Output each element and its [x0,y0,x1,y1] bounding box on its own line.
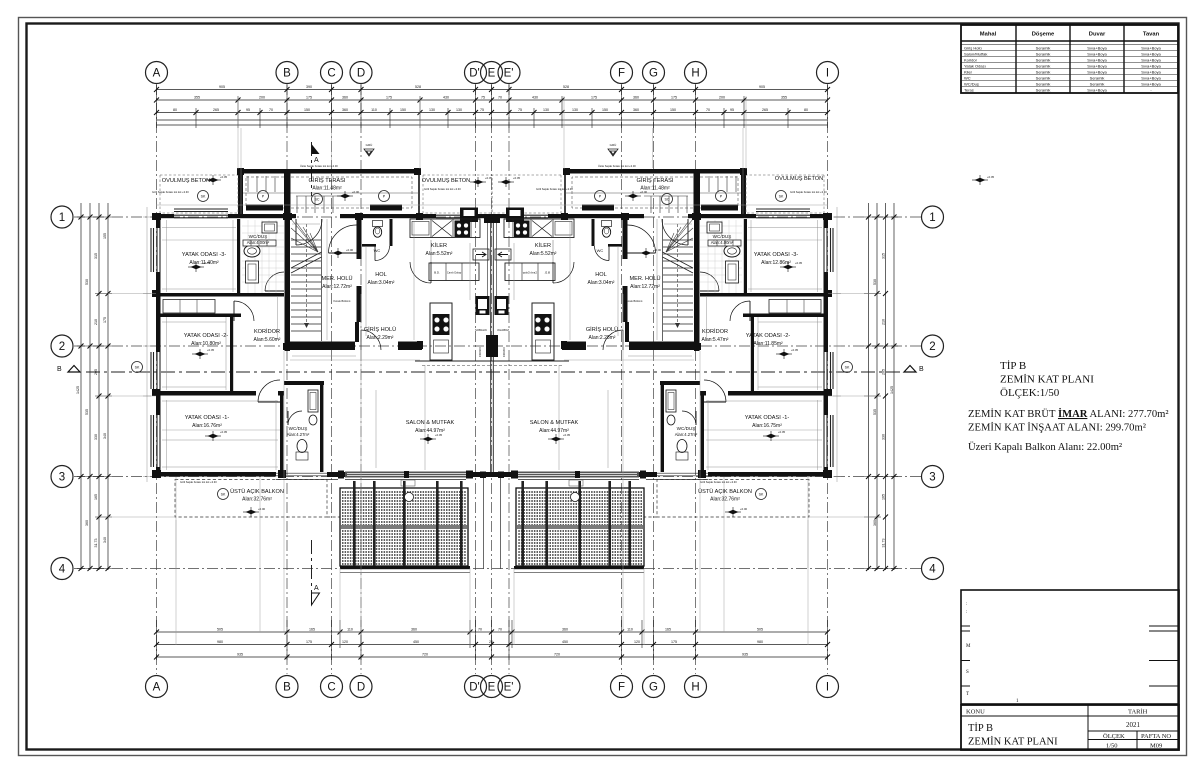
svg-text:130: 130 [429,108,435,112]
svg-text:C: C [327,682,335,694]
svg-text:130: 130 [456,108,462,112]
svg-text:KİLER: KİLER [535,242,551,249]
svg-text:OVULMUŞ BETON: OVULMUŞ BETON [775,176,823,182]
svg-text:Yemek Bölümü: Yemek Bölümü [625,299,643,303]
svg-text:150: 150 [304,108,310,112]
svg-text:C: C [327,68,335,80]
svg-text:530: 530 [873,279,877,285]
svg-text:Alan:2.29m²: Alan:2.29m² [367,335,394,341]
svg-text:GRÜ: GRÜ [366,143,373,147]
svg-text:Alan:3.04m²: Alan:3.04m² [588,280,615,286]
svg-text:75: 75 [480,108,484,112]
svg-text:Gizli Saçak Kotası üst kot +3.: Gizli Saçak Kotası üst kot +3.30 [536,187,573,191]
svg-text:720: 720 [422,653,428,657]
svg-text:Sıva+Boya: Sıva+Boya [1087,51,1107,56]
svg-text:Alan:4.27m²: Alan:4.27m² [287,432,310,437]
svg-text:ZEMİN KAT PLANI: ZEMİN KAT PLANI [1000,374,1094,386]
svg-text:TİP B: TİP B [968,722,993,734]
svg-text:D: D [357,682,365,694]
svg-text:265: 265 [762,108,768,112]
svg-text:80: 80 [173,108,177,112]
svg-text:A: A [314,157,319,164]
svg-text:120: 120 [342,640,348,644]
svg-text:Gizli Saçak Kotası üst kot +3.: Gizli Saçak Kotası üst kot +3.30 [790,190,827,194]
svg-text:95: 95 [730,108,734,112]
svg-text:175: 175 [306,96,312,100]
svg-text:Sıva+Boya: Sıva+Boya [1087,87,1107,92]
svg-text:E': E' [504,68,514,80]
svg-text:360: 360 [342,96,348,100]
svg-text:Seramik: Seramik [1090,75,1105,80]
svg-text:YATAK ODASI -2-: YATAK ODASI -2- [746,333,791,339]
svg-text:70: 70 [498,628,502,632]
svg-text:+0.00: +0.00 [740,507,748,511]
svg-text:WC: WC [964,75,971,80]
svg-text:2: 2 [59,341,65,353]
svg-text:ZEMİN KAT PLANI: ZEMİN KAT PLANI [968,736,1058,748]
svg-text:SK: SK [201,194,206,198]
svg-text:4: 4 [59,564,66,576]
svg-text:935: 935 [237,653,243,657]
svg-text:360: 360 [633,108,639,112]
svg-text:360: 360 [342,108,348,112]
svg-text:MER. HOLÜ: MER. HOLÜ [629,275,660,282]
svg-text:YATAK ODASI -3-: YATAK ODASI -3- [182,252,227,258]
svg-text:430: 430 [532,96,538,100]
svg-text:HOL: HOL [375,272,387,278]
svg-text:A: A [314,585,319,592]
svg-text::: : [966,602,967,607]
svg-text:Tavan: Tavan [1143,32,1160,38]
svg-text:HOL: HOL [595,272,607,278]
svg-text:B: B [283,68,291,80]
svg-text:80: 80 [804,108,808,112]
svg-text:110: 110 [371,108,377,112]
svg-text:A: A [153,68,161,80]
svg-text:SK: SK [759,492,764,496]
svg-text:1425: 1425 [76,386,80,394]
svg-text:Alan:4.00m²: Alan:4.00m² [247,240,270,245]
svg-text:M09: M09 [1150,743,1162,750]
svg-text:+0.05: +0.05 [485,176,493,180]
svg-text:Seramik: Seramik [1036,81,1051,86]
svg-text:Alan:4.27m²: Alan:4.27m² [675,432,698,437]
svg-text:Alan:11.48m²: Alan:11.48m² [312,186,342,192]
svg-text:75: 75 [481,96,485,100]
svg-text:315: 315 [882,253,886,259]
svg-text:315: 315 [94,253,98,259]
svg-text:Alan:12.72m²: Alan:12.72m² [630,284,660,290]
svg-text:Alan:16.75m²: Alan:16.75m² [752,423,782,429]
svg-text:150: 150 [670,108,676,112]
svg-text:210: 210 [882,319,886,325]
svg-text:KORİDOR: KORİDOR [702,328,728,335]
svg-text:905: 905 [759,85,765,89]
svg-text:Seramik: Seramik [1036,63,1051,68]
svg-text:Alan:16.76m²: Alan:16.76m² [192,423,222,429]
svg-text:Gizli Saçak Kotası üst kot +3.: Gizli Saçak Kotası üst kot +3.30 [180,480,217,484]
svg-text:B: B [57,366,62,373]
svg-text:Sıva+Boya: Sıva+Boya [1141,51,1161,56]
svg-text:G: G [649,682,658,694]
svg-text:ÖLÇEK: ÖLÇEK [1103,733,1125,740]
svg-text:26: 26 [489,640,493,644]
svg-text:A: A [153,682,161,694]
svg-text:Alan:11.85m²: Alan:11.85m² [753,341,783,347]
svg-text:2021: 2021 [1126,721,1141,729]
svg-text:Alan:32.76m²: Alan:32.76m² [710,497,740,503]
svg-text:Alan:11.40m²: Alan:11.40m² [189,260,219,266]
svg-text:528: 528 [563,85,569,89]
svg-text:ZEMİN KAT BRÜT İMAR ALANI: 277: ZEMİN KAT BRÜT İMAR ALANI: 277.70m² [968,408,1169,420]
svg-text:E: E [488,682,496,694]
svg-text:360: 360 [873,520,877,526]
svg-text:Teras: Teras [964,87,974,92]
svg-text:SALON & MUTFAK: SALON & MUTFAK [406,420,455,426]
svg-text:1: 1 [59,212,65,224]
svg-text:B: B [919,366,924,373]
svg-text:Seramik: Seramik [1036,69,1051,74]
svg-text:450: 450 [562,640,568,644]
svg-text:ÜSTÜ AÇIK BALKON: ÜSTÜ AÇIK BALKON [230,488,284,495]
svg-text:150: 150 [400,108,406,112]
svg-text:+0.00: +0.00 [654,248,662,252]
svg-text:SK: SK [779,194,784,198]
svg-text:450: 450 [413,640,419,644]
svg-text:110: 110 [347,628,353,632]
svg-text:355: 355 [194,96,200,100]
svg-text:Giriş Holü: Giriş Holü [964,45,982,50]
svg-text:SK: SK [135,365,140,369]
svg-text:Seramik: Seramik [1090,81,1105,86]
svg-text:WC: WC [374,248,381,253]
svg-text:D': D' [469,682,480,694]
svg-text:+0.05: +0.05 [795,261,803,265]
svg-text:KORİDOR: KORİDOR [254,328,280,335]
svg-text:4: 4 [929,564,936,576]
svg-text:130: 130 [543,108,549,112]
svg-text:Sıva+Boya: Sıva+Boya [1087,45,1107,50]
svg-text:Sıva+Boya: Sıva+Boya [1087,63,1107,68]
svg-text:I: I [826,682,829,694]
svg-text:75: 75 [518,108,522,112]
svg-text:+0.05: +0.05 [513,176,521,180]
svg-text:3: 3 [929,472,935,484]
svg-text:205: 205 [94,369,98,375]
svg-text:KONU: KONU [966,709,985,716]
svg-text:SC: SC [315,197,320,201]
svg-text:Alan:10.80m²: Alan:10.80m² [191,341,221,347]
svg-text:1/50: 1/50 [1106,743,1118,750]
svg-text:980: 980 [757,640,763,644]
svg-text:Üzeri Kapalı Balkon Alanı:: Üzeri Kapalı Balkon Alanı: 22.00m² [968,441,1122,453]
svg-text:165: 165 [882,494,886,500]
svg-text:175: 175 [306,640,312,644]
svg-text:WC/DUŞ: WC/DUŞ [249,234,268,239]
svg-text:Gizli Saçak Kotası üst kot +3.: Gizli Saçak Kotası üst kot +3.30 [152,190,189,194]
svg-text:175: 175 [671,640,677,644]
svg-text:Alan:12.86m²: Alan:12.86m² [761,260,791,266]
svg-text:OVULMUŞ BETON: OVULMUŞ BETON [162,178,210,184]
svg-text:Alan:5.52m²: Alan:5.52m² [530,251,557,257]
svg-text:70: 70 [478,628,482,632]
svg-text:Salon/Mutfak: Salon/Mutfak [964,51,987,56]
svg-text:ÖLÇEK:1/50: ÖLÇEK:1/50 [1000,387,1060,399]
svg-text:175: 175 [671,96,677,100]
svg-text:Üstte Saçak Kotası üst kot +3.: Üstte Saçak Kotası üst kot +3.30 [598,164,636,168]
svg-text:YATAK ODASI -3-: YATAK ODASI -3- [754,252,799,258]
svg-text:Alan:44.97m²: Alan:44.97m² [415,428,445,434]
svg-text:SK: SK [221,492,226,496]
svg-text:70: 70 [498,96,502,100]
svg-text:31.73: 31.73 [882,539,886,548]
svg-text:Seramik: Seramik [1036,87,1051,92]
svg-text:D': D' [469,68,480,80]
svg-text:KİLER: KİLER [431,242,447,249]
svg-text:Mahal: Mahal [980,32,997,38]
svg-text:505: 505 [757,628,763,632]
svg-text:205: 205 [882,369,886,375]
svg-text:150: 150 [602,108,608,112]
svg-text:OVULMUŞ BETON: OVULMUŞ BETON [422,178,470,184]
svg-text:210: 210 [94,319,98,325]
svg-text:T: T [966,692,969,697]
svg-text:MER. HOLÜ: MER. HOLÜ [321,275,352,282]
svg-text:3: 3 [59,472,65,484]
svg-text:130: 130 [572,108,578,112]
svg-text:+0.05: +0.05 [778,430,786,434]
svg-text:935: 935 [742,653,748,657]
svg-text:GİRİŞ HOLÜ: GİRİŞ HOLÜ [364,326,396,333]
svg-text:D: D [357,68,365,80]
svg-text:Seramik: Seramik [1036,51,1051,56]
svg-text:GİRİŞ TERASI: GİRİŞ TERASI [309,177,346,184]
svg-text:70: 70 [269,108,273,112]
svg-text:360: 360 [411,628,417,632]
svg-text:YATAK ODASI -1-: YATAK ODASI -1- [745,415,790,421]
svg-text:535: 535 [85,409,89,415]
svg-text:720: 720 [554,653,560,657]
svg-text:Yemek Bölümü: Yemek Bölümü [333,299,351,303]
svg-text:WC: WC [597,248,604,253]
svg-text:Döşeme: Döşeme [1032,32,1055,38]
svg-text:360: 360 [633,96,639,100]
svg-text:360: 360 [562,628,568,632]
svg-text:165: 165 [309,628,315,632]
svg-text:Alan:2.28m²: Alan:2.28m² [589,335,616,341]
svg-text:ÜSTÜ AÇIK BALKON: ÜSTÜ AÇIK BALKON [698,488,752,495]
svg-text:WC/DUŞ: WC/DUŞ [713,234,732,239]
svg-text:Sıva+Boya: Sıva+Boya [1141,69,1161,74]
svg-text:+0.05: +0.05 [207,348,215,352]
svg-text:Alan:5.52m²: Alan:5.52m² [426,251,453,257]
svg-text:530: 530 [85,279,89,285]
svg-text:70: 70 [706,108,710,112]
svg-text:1: 1 [929,212,935,224]
svg-text:980: 980 [217,640,223,644]
svg-text:Sıva+Boya: Sıva+Boya [1087,57,1107,62]
svg-text:YATAK ODASI -2-: YATAK ODASI -2- [184,333,229,339]
svg-text:1425: 1425 [890,386,894,394]
svg-text:H: H [691,68,699,80]
svg-text:31.73: 31.73 [94,539,98,548]
svg-text:+0.00: +0.00 [346,248,354,252]
svg-text:95: 95 [246,108,250,112]
svg-text:Sıva+Boya: Sıva+Boya [1141,63,1161,68]
svg-text:Sıva+Boya: Sıva+Boya [1141,45,1161,50]
svg-text:Seramik: Seramik [1036,57,1051,62]
svg-text:TİP B: TİP B [1000,360,1026,372]
svg-text:200: 200 [719,96,725,100]
svg-text:Kiler: Kiler [964,69,973,74]
svg-text:360: 360 [85,520,89,526]
svg-text:GRÜ: GRÜ [610,143,617,147]
svg-text:Seramik: Seramik [1036,45,1051,50]
svg-text:Sıva+Boya: Sıva+Boya [1141,57,1161,62]
svg-text:505: 505 [217,628,223,632]
svg-text:Gizli Saçak Kotası üst kot +3.: Gizli Saçak Kotası üst kot +3.30 [424,187,461,191]
svg-text:SK: SK [845,365,850,369]
svg-text:SC: SC [665,197,670,201]
svg-text:265: 265 [213,108,219,112]
svg-text:Yatak Odası: Yatak Odası [964,63,986,68]
svg-text:Alan:44.97m²: Alan:44.97m² [539,428,569,434]
svg-text:I: I [826,68,829,80]
svg-text:340: 340 [103,433,107,439]
svg-text:175: 175 [386,96,392,100]
svg-text:Sıva+Boya: Sıva+Boya [1141,81,1161,86]
svg-text:155: 155 [103,233,107,239]
svg-text:430: 430 [443,96,449,100]
svg-text:YATAK ODASI -1-: YATAK ODASI -1- [185,415,230,421]
svg-text:+0.05: +0.05 [220,175,228,179]
svg-text:WC/DUŞ: WC/DUŞ [289,426,308,431]
svg-text:175: 175 [591,96,597,100]
svg-text:355: 355 [781,96,787,100]
svg-text:SALON & MUTFAK: SALON & MUTFAK [530,420,579,426]
svg-text::: : [966,610,967,615]
svg-text:Alan:5.60m²: Alan:5.60m² [254,337,281,343]
svg-text:Gizli Saçak Kotası üst kot +3.: Gizli Saçak Kotası üst kot +3.30 [700,480,737,484]
svg-text:Sıva+Boya: Sıva+Boya [1141,75,1161,80]
svg-text:528: 528 [415,85,421,89]
svg-text:+0.05: +0.05 [791,348,799,352]
svg-text:200: 200 [259,96,265,100]
svg-text:WC/DUŞ: WC/DUŞ [677,426,696,431]
svg-text:Alan:11.48m²: Alan:11.48m² [640,186,670,192]
svg-text:Alan:5.47m²: Alan:5.47m² [702,337,729,343]
svg-text:PAFTA NO: PAFTA NO [1141,733,1171,740]
svg-text:Duvar: Duvar [1089,32,1106,38]
svg-text:2: 2 [929,341,935,353]
svg-text:TARİH: TARİH [1128,709,1148,716]
svg-text:535: 535 [873,409,877,415]
svg-text:Sıva+Boya: Sıva+Boya [1087,69,1107,74]
svg-text:G: G [649,68,658,80]
svg-text:Üstte Saçak Kotası üst kot +3.: Üstte Saçak Kotası üst kot +3.30 [300,164,338,168]
svg-text:Seramik: Seramik [1036,75,1051,80]
svg-text:+0.00: +0.00 [352,190,360,194]
svg-text:Alan:4.00m²: Alan:4.00m² [711,240,734,245]
svg-text:GİRİŞ HOLÜ: GİRİŞ HOLÜ [586,326,618,333]
svg-text:B: B [283,682,291,694]
svg-text:Alan:12.72m²: Alan:12.72m² [322,284,352,290]
svg-text:175: 175 [103,317,107,323]
svg-text:330: 330 [94,434,98,440]
svg-text:Koridor: Koridor [964,57,978,62]
svg-text:Alan:3.04m²: Alan:3.04m² [368,280,395,286]
svg-text:+0.05: +0.05 [220,430,228,434]
svg-text:S: S [966,670,969,675]
svg-text:390: 390 [306,85,312,89]
svg-text:165: 165 [665,628,671,632]
svg-text:340: 340 [103,537,107,543]
svg-text:+0.05: +0.05 [987,175,995,179]
svg-text:H: H [691,682,699,694]
svg-text:905: 905 [219,85,225,89]
svg-text:165: 165 [94,494,98,500]
svg-text:120: 120 [634,640,640,644]
svg-text:110: 110 [627,628,633,632]
svg-text:Alan:32.76m²: Alan:32.76m² [242,497,272,503]
svg-text:GİRİŞ TERASI: GİRİŞ TERASI [637,177,674,184]
svg-text:M: M [966,644,971,649]
svg-text:+0.00: +0.00 [258,507,266,511]
svg-text:E: E [488,68,496,80]
svg-text:330: 330 [882,434,886,440]
svg-text:E': E' [504,682,514,694]
svg-text:ZEMİN KAT İNŞAAT ALANI: 299.70: ZEMİN KAT İNŞAAT ALANI: 299.70m² [968,422,1146,434]
svg-text:F: F [618,682,625,694]
svg-text:WC/Duş: WC/Duş [964,81,979,86]
svg-text:F: F [618,68,625,80]
